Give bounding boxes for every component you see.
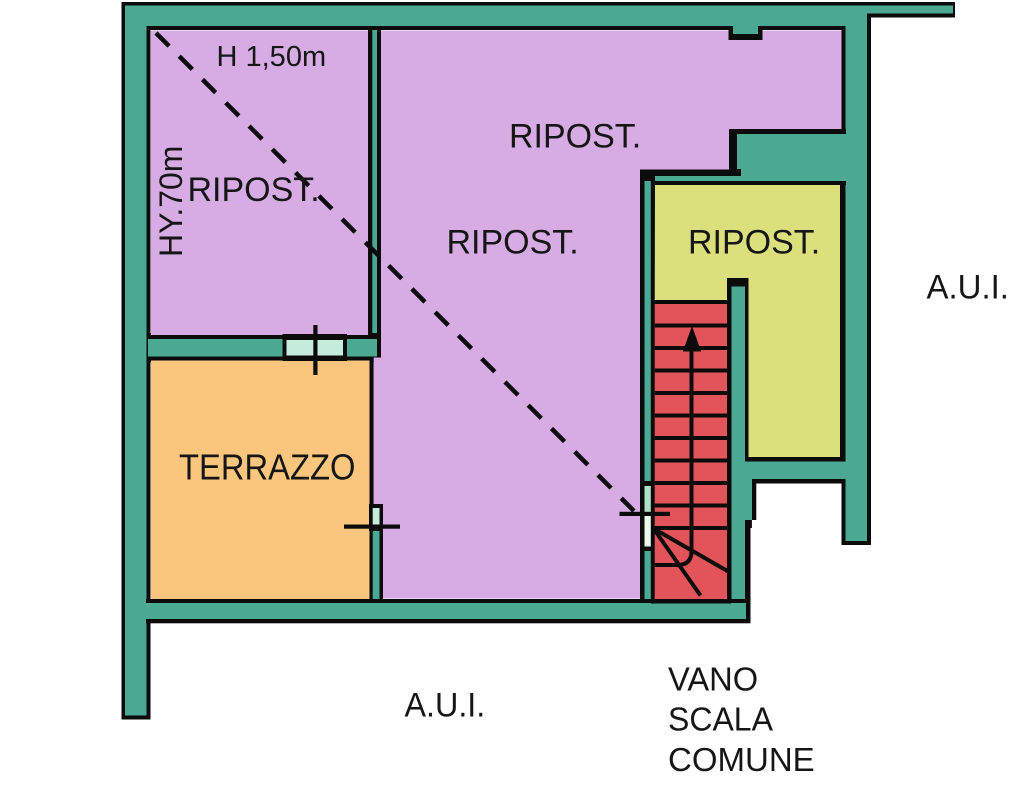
svg-text:HY.70m: HY.70m xyxy=(153,146,189,257)
svg-text:SCALA: SCALA xyxy=(668,701,773,738)
svg-text:RIPOST.: RIPOST. xyxy=(688,224,820,262)
svg-text:RIPOST.: RIPOST. xyxy=(509,118,641,156)
svg-text:VANO: VANO xyxy=(668,660,758,697)
svg-text:RIPOST.: RIPOST. xyxy=(188,171,320,209)
svg-text:A.U.I.: A.U.I. xyxy=(405,687,486,725)
svg-text:TERRAZZO: TERRAZZO xyxy=(179,448,355,488)
svg-text:A.U.I.: A.U.I. xyxy=(927,269,1009,307)
svg-text:RIPOST.: RIPOST. xyxy=(447,224,579,262)
svg-text:COMUNE: COMUNE xyxy=(668,741,815,778)
svg-text:H 1,50m: H 1,50m xyxy=(217,41,327,73)
